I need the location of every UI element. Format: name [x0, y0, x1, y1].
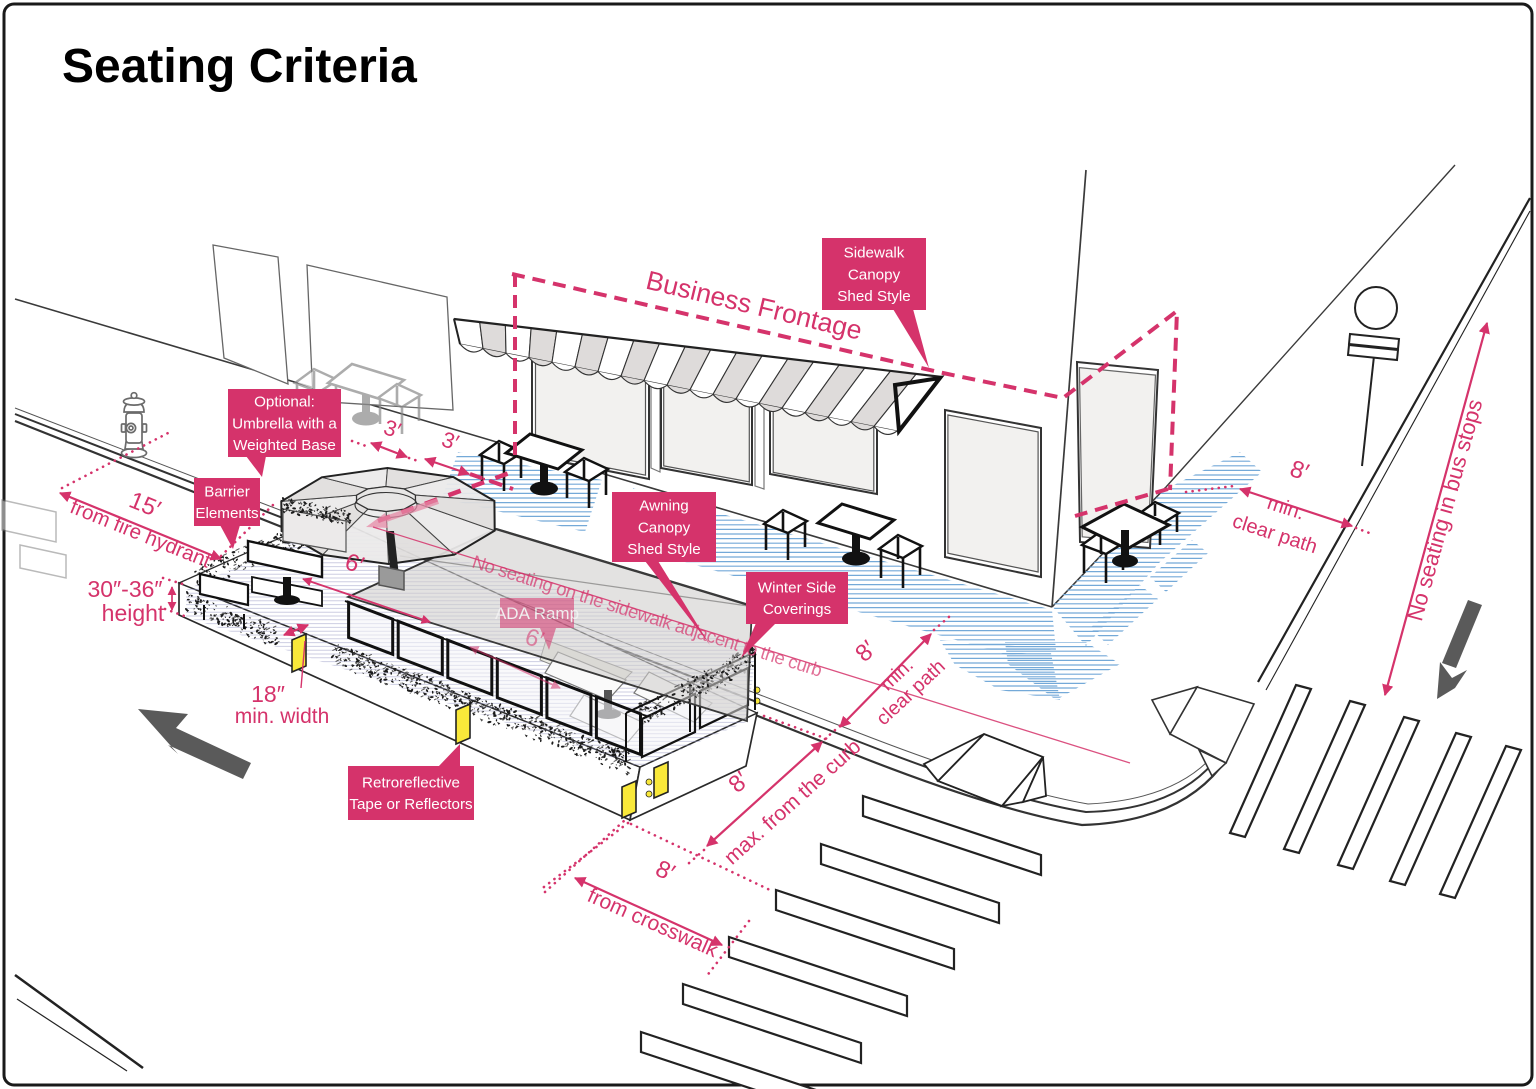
svg-text:Shed Style: Shed Style	[627, 541, 700, 558]
svg-text:min. width: min. width	[235, 705, 330, 728]
svg-text:Elements: Elements	[195, 505, 259, 522]
svg-text:Canopy: Canopy	[638, 519, 691, 536]
svg-text:Canopy: Canopy	[848, 266, 901, 283]
svg-text:height: height	[102, 600, 165, 626]
svg-text:Weighted Base: Weighted Base	[233, 437, 336, 454]
svg-text:ADA Ramp: ADA Ramp	[495, 604, 579, 623]
svg-text:Coverings: Coverings	[763, 601, 832, 618]
svg-text:30″-36″: 30″-36″	[87, 576, 162, 602]
svg-text:Sidewalk: Sidewalk	[844, 245, 905, 262]
svg-text:Seating Criteria: Seating Criteria	[62, 40, 417, 93]
svg-text:Optional:: Optional:	[254, 394, 315, 411]
svg-text:Retroreflective: Retroreflective	[362, 775, 460, 792]
svg-text:18″: 18″	[251, 681, 285, 707]
svg-text:Tape or Reflectors: Tape or Reflectors	[349, 796, 473, 813]
svg-text:Winter Side: Winter Side	[758, 580, 837, 597]
svg-text:Barrier: Barrier	[204, 484, 250, 501]
svg-text:Shed Style: Shed Style	[837, 288, 910, 305]
svg-text:Awning: Awning	[639, 498, 689, 515]
svg-text:Umbrella with a: Umbrella with a	[232, 415, 337, 432]
